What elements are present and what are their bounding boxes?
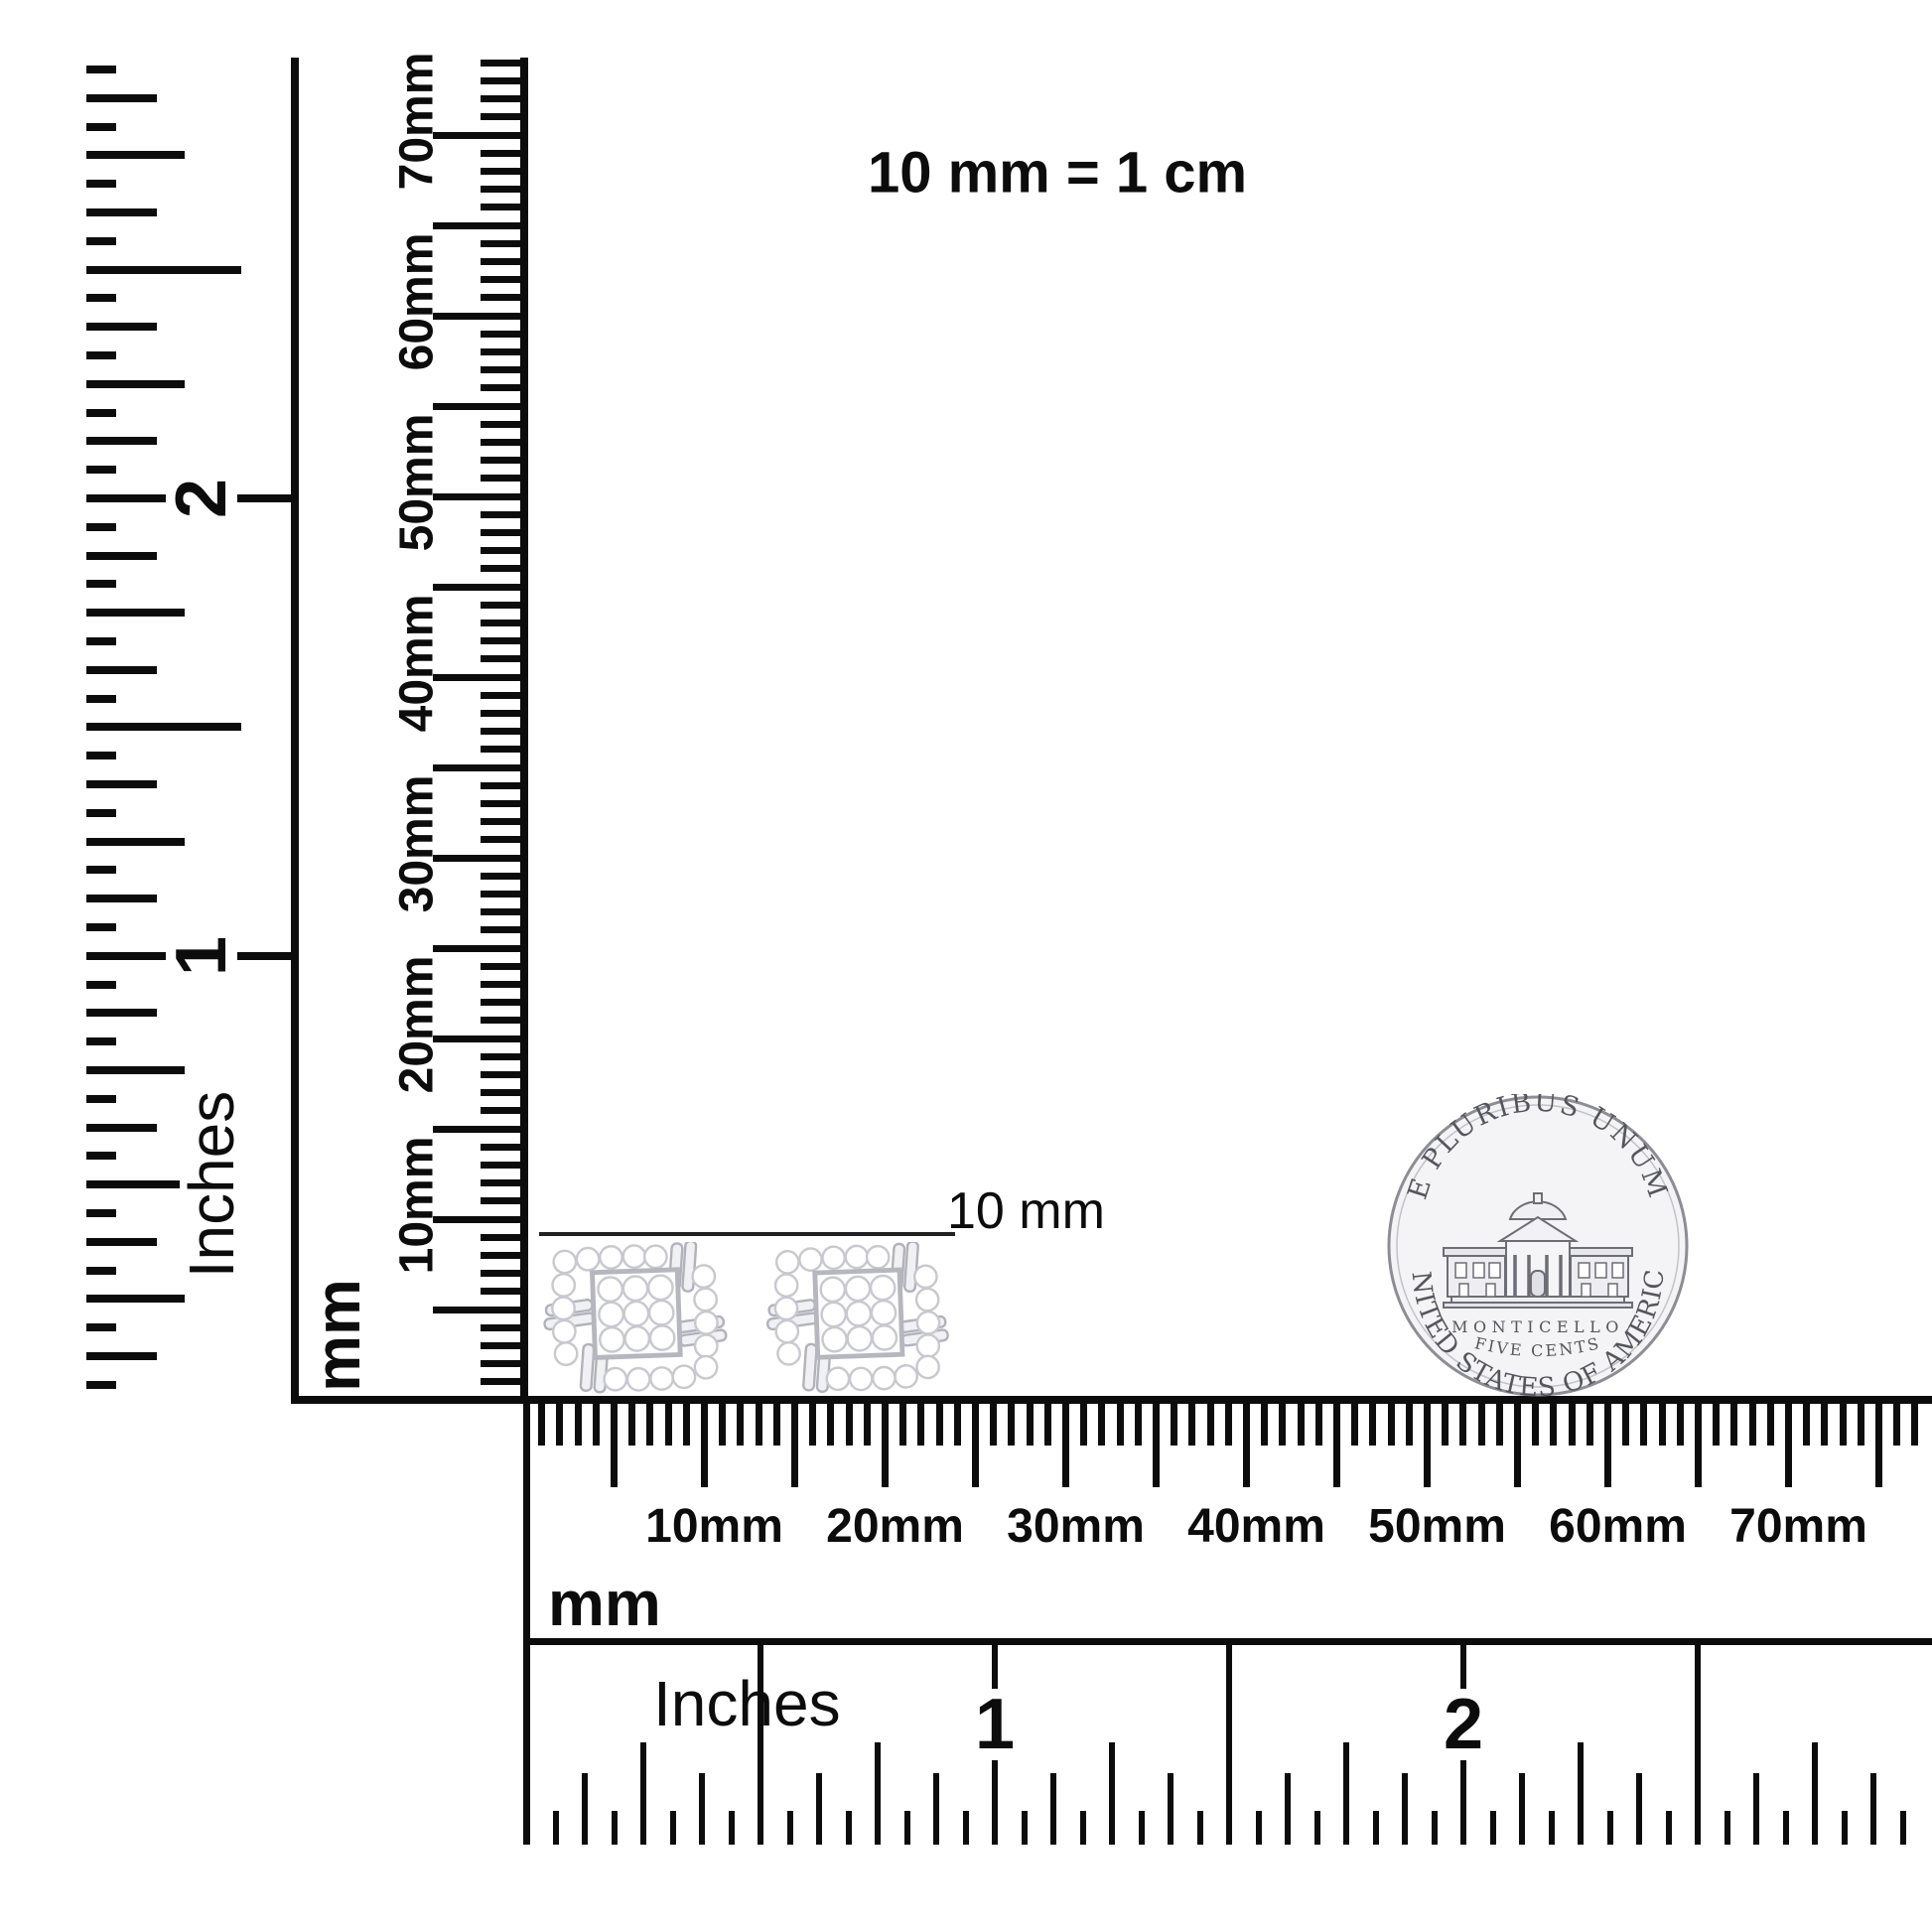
ruler-tick [481, 77, 520, 84]
ruler-tick [1870, 1773, 1876, 1845]
ruler-tick [86, 1323, 116, 1331]
ruler-tick [699, 1773, 705, 1845]
ruler-tick [86, 723, 241, 731]
bottom-mm-label: 60mm [1549, 1499, 1687, 1554]
ruler-tick [1044, 1404, 1051, 1446]
ruler-tick [86, 637, 116, 645]
ruler-tick [1314, 1811, 1320, 1845]
ruler-tick [1532, 1404, 1539, 1446]
ruler-tick [1911, 1404, 1918, 1446]
ruler-tick [665, 1404, 672, 1446]
ruler-tick [787, 1811, 793, 1845]
ruler-tick [481, 511, 520, 518]
ruler-tick [481, 800, 520, 807]
ruler-tick [582, 1773, 588, 1845]
ruler-tick [1478, 1404, 1485, 1446]
ruler-tick [1225, 1404, 1232, 1446]
ruler-tick [1677, 1404, 1684, 1446]
coin-building-label: MONTICELLO [1451, 1317, 1624, 1336]
ruler-left-edge [523, 1404, 530, 1845]
ruler-tick [1243, 1404, 1250, 1487]
bottom-inch-numeral: 2 [1438, 1689, 1489, 1760]
ruler-tick [481, 1252, 520, 1259]
ruler-tick [670, 1811, 676, 1845]
ruler-tick [640, 1742, 646, 1845]
ruler-tick [481, 891, 520, 897]
ruler-tick [1098, 1404, 1105, 1446]
ruler-tick [86, 94, 157, 102]
ruler-tick [433, 1035, 520, 1042]
bottom-mm-label: 50mm [1368, 1499, 1506, 1554]
ruler-tick [86, 552, 157, 560]
bottom-mm-ruler-unit: mm [548, 1567, 661, 1640]
ruler-tick [481, 908, 520, 915]
ruler-tick [433, 674, 520, 681]
ruler-tick [481, 818, 520, 825]
bottom-mm-label: 30mm [1007, 1499, 1145, 1554]
ruler-tick [990, 1404, 997, 1446]
ruler-tick [481, 926, 520, 933]
left-inch-numeral: 1 [166, 930, 237, 982]
ruler-tick [1406, 1404, 1413, 1446]
ruler-tick [917, 1404, 924, 1446]
earring-right [766, 1242, 949, 1395]
ruler-tick [481, 331, 520, 338]
ruler-tick [86, 1095, 116, 1103]
ruler-tick [611, 1404, 618, 1487]
ruler-tick [972, 1404, 979, 1487]
ruler-tick [86, 1381, 116, 1389]
ruler-tick [433, 855, 520, 862]
ruler-tick [86, 66, 116, 73]
ruler-tick [481, 1378, 520, 1385]
ruler-tick [1432, 1811, 1438, 1845]
ruler-tick [875, 1742, 881, 1845]
ruler-tick [1442, 1404, 1449, 1446]
ruler-tick [1109, 1742, 1115, 1845]
left-mm-ruler-unit: mm [301, 1279, 374, 1392]
left-mm-label: 60mm [390, 233, 445, 371]
ruler-tick [433, 132, 520, 139]
ruler-tick [1622, 1404, 1629, 1446]
ruler-tick [1402, 1773, 1408, 1845]
ruler-tick [433, 1126, 520, 1133]
ruler-tick [612, 1811, 618, 1845]
ruler-tick [593, 1404, 600, 1446]
ruler-tick [481, 150, 520, 157]
ruler-tick [1388, 1404, 1395, 1446]
ruler-tick [1695, 1645, 1701, 1845]
ruler-tick [1050, 1773, 1056, 1845]
ruler-tick [481, 168, 520, 175]
ruler-tick [481, 276, 520, 283]
ruler-tick [1008, 1404, 1015, 1446]
ruler-tick [86, 323, 157, 331]
ruler-tick [1785, 1404, 1792, 1487]
ruler-tick [481, 475, 520, 482]
ruler-tick [1496, 1404, 1503, 1446]
ruler-tick [86, 923, 116, 931]
ruler-tick [882, 1404, 889, 1487]
ruler-tick [1842, 1811, 1848, 1845]
ruler-tick [827, 1404, 834, 1446]
ruler-tick [86, 294, 116, 302]
ruler-tick [481, 1360, 520, 1367]
ruler-tick [1587, 1404, 1593, 1446]
ruler-tick [481, 1179, 520, 1186]
ruler-tick [481, 782, 520, 789]
ruler-tick [481, 1053, 520, 1060]
ruler-tick [1424, 1404, 1431, 1487]
ruler-tick [86, 237, 116, 245]
ruler-tick [86, 409, 116, 417]
ruler-tick [1730, 1404, 1737, 1446]
ruler-tick [481, 1197, 520, 1204]
ruler-tick [1062, 1404, 1069, 1487]
ruler-tick [1188, 1404, 1195, 1446]
ruler-tick [1022, 1811, 1028, 1845]
ruler-tick [481, 836, 520, 843]
ruler-tick [1373, 1811, 1379, 1845]
ruler-tick [1315, 1404, 1322, 1446]
ruler-tick [86, 895, 157, 902]
ruler-tick [1514, 1404, 1521, 1487]
measure-line [539, 1232, 955, 1236]
ruler-tick [809, 1404, 816, 1446]
ruler-tick [481, 1144, 520, 1151]
bottom-inch-ruler-unit: Inches [645, 1672, 849, 1735]
ruler-tick [1153, 1404, 1160, 1487]
ruler-tick [481, 1017, 520, 1024]
ruler-tick [1550, 1404, 1557, 1446]
ruler-tick [86, 695, 116, 703]
left-mm-label: 50mm [390, 414, 445, 552]
ruler-tick [86, 866, 116, 874]
ruler-tick [433, 403, 520, 410]
ruler-tick [773, 1404, 780, 1446]
ruler-tick [481, 728, 520, 735]
ruler-tick [1226, 1645, 1232, 1845]
ruler-tick [86, 180, 116, 188]
ruler-tick [936, 1404, 943, 1446]
ruler-tick [1604, 1404, 1611, 1487]
ruler-tick [1343, 1742, 1349, 1845]
ruler-tick [86, 351, 116, 359]
ruler-tick [933, 1773, 939, 1845]
ruler-tick [1549, 1811, 1555, 1845]
ruler-tick [1578, 1742, 1584, 1845]
ruler-tick [816, 1773, 822, 1845]
ruler-tick [433, 313, 520, 320]
ruler-tick [1875, 1404, 1882, 1487]
ruler-tick [86, 752, 116, 759]
ruler-tick [86, 123, 116, 131]
ruler-tick [481, 1234, 520, 1241]
ruler-tick [433, 222, 520, 229]
left-mm-label: 40mm [390, 595, 445, 733]
ruler-tick [1369, 1404, 1376, 1446]
ruler-tick [1753, 1773, 1759, 1845]
ruler-tick [481, 1089, 520, 1096]
ruler-tick [1207, 1404, 1214, 1446]
ruler-tick [86, 1152, 116, 1160]
ruler-tick [481, 95, 520, 102]
ruler-tick [1168, 1773, 1173, 1845]
ruler-tick [1858, 1404, 1864, 1446]
ruler-tick [846, 1404, 853, 1446]
ruler-tick [481, 421, 520, 428]
ruler-tick [1171, 1404, 1177, 1446]
ruler-tick [556, 1404, 563, 1446]
ruler-tick [1659, 1404, 1666, 1446]
left-mm-label: 10mm [390, 1137, 445, 1275]
left-mm-ruler-spine [520, 58, 528, 1400]
ruler-tick [1027, 1404, 1034, 1446]
ruler-tick [701, 1404, 708, 1487]
ruler-tick [1783, 1811, 1789, 1845]
ruler-tick [737, 1404, 744, 1446]
ruler-tick [481, 439, 520, 446]
ruler-tick [481, 1288, 520, 1295]
ruler-tick [86, 1267, 116, 1275]
ruler-tick [481, 1270, 520, 1277]
ruler-tick [481, 999, 520, 1006]
ruler-tick [86, 780, 157, 788]
ruler-tick [481, 1324, 520, 1331]
bottom-inch-ruler-spine [523, 1638, 1932, 1645]
ruler-tick [481, 384, 520, 391]
ruler-tick [481, 746, 520, 753]
bottom-mm-label: 20mm [826, 1499, 964, 1554]
ruler-tick [1900, 1811, 1906, 1845]
ruler-tick [481, 565, 520, 572]
ruler-tick [481, 873, 520, 880]
ruler-tick [481, 1162, 520, 1169]
ruler-tick [86, 838, 185, 846]
ruler-tick [1080, 1404, 1087, 1446]
ruler-tick [899, 1404, 906, 1446]
ruler-tick [1666, 1811, 1672, 1845]
ruler-tick [433, 1307, 520, 1313]
ruler-tick [481, 204, 520, 210]
ruler-tick [1607, 1811, 1613, 1845]
ruler-tick [481, 981, 520, 988]
ruler-tick [86, 266, 241, 274]
ruler-tick [1080, 1811, 1086, 1845]
ruler-tick [86, 981, 116, 989]
ruler-tick [481, 637, 520, 644]
ruler-tick [433, 584, 520, 591]
left-mm-label: 20mm [390, 956, 445, 1094]
ruler-tick [481, 1071, 520, 1078]
ruler-tick [538, 1404, 545, 1446]
ruler-tick [86, 580, 116, 588]
ruler-tick [1713, 1404, 1720, 1446]
ruler-tick [481, 457, 520, 464]
bottom-mm-label: 70mm [1729, 1499, 1867, 1554]
ruler-tick [481, 655, 520, 662]
ruler-tick [575, 1404, 582, 1446]
bottom-mm-label: 40mm [1187, 1499, 1325, 1554]
ruler-tick [481, 258, 520, 265]
left-mm-label: 70mm [390, 53, 445, 191]
ruler-tick [1640, 1404, 1647, 1446]
ruler-tick [433, 1216, 520, 1223]
bottom-mm-label: 10mm [645, 1499, 783, 1554]
ruler-tick [1351, 1404, 1358, 1446]
ruler-tick [1298, 1404, 1305, 1446]
ruler-tick [86, 380, 185, 388]
ruler-tick [481, 692, 520, 699]
ruler-tick [729, 1811, 735, 1845]
ruler-tick [481, 1342, 520, 1349]
ruler-tick [628, 1404, 635, 1446]
ruler-tick [481, 710, 520, 717]
ruler-tick [553, 1811, 559, 1845]
ruler-tick [1139, 1811, 1145, 1845]
measure-label: 10 mm [947, 1181, 1105, 1241]
ruler-tick [481, 366, 520, 373]
ruler-tick [481, 294, 520, 301]
ruler-tick [954, 1404, 961, 1446]
ruler-tick [904, 1811, 910, 1845]
ruler-tick [791, 1404, 798, 1487]
ruler-tick [1256, 1811, 1262, 1845]
ruler-tick [86, 437, 157, 445]
ruler-tick [1279, 1404, 1286, 1446]
ruler-tick [846, 1811, 852, 1845]
ruler-tick [86, 1352, 157, 1360]
ruler-tick [1803, 1404, 1810, 1446]
ruler-tick [1893, 1404, 1900, 1446]
ruler-tick [86, 466, 116, 474]
ruler-tick [86, 523, 116, 531]
left-inch-ruler-spine [291, 58, 299, 1400]
ruler-tick [481, 113, 520, 120]
ruler-tick [86, 809, 116, 817]
ruler-tick [481, 620, 520, 626]
ruler-tick [86, 151, 185, 159]
ruler-tick [481, 1107, 520, 1114]
ruler-tick [86, 1009, 157, 1017]
ruler-tick [86, 666, 157, 674]
ruler-tick [481, 60, 520, 67]
ruler-tick [481, 240, 520, 247]
left-mm-label: 30mm [390, 775, 445, 913]
ruler-tick [1569, 1404, 1576, 1446]
ruler-tick [86, 208, 157, 216]
ruler-tick [963, 1811, 969, 1845]
bottom-inch-numeral: 1 [969, 1689, 1021, 1760]
ruler-tick [481, 963, 520, 970]
ruler-tick [756, 1404, 762, 1446]
ruler-tick [1519, 1773, 1525, 1845]
ruler-tick [1749, 1404, 1756, 1446]
ruler-tick [481, 348, 520, 355]
ruler-tick [1459, 1404, 1466, 1446]
earring-left [541, 1242, 730, 1395]
ruler-tick [683, 1404, 690, 1446]
ruler-tick [86, 1209, 116, 1217]
left-inch-ruler-unit: Inches [180, 1083, 243, 1287]
ruler-tick [1285, 1773, 1291, 1845]
ruler-tick [1840, 1404, 1847, 1446]
ruler-tick [433, 493, 520, 500]
ruler-tick [1197, 1811, 1203, 1845]
ruler-tick [481, 547, 520, 554]
ruler-tick [719, 1404, 726, 1446]
ruler-tick [86, 1037, 116, 1045]
ruler-tick [646, 1404, 653, 1446]
ruler-tick [864, 1404, 871, 1446]
ruler-tick [1821, 1404, 1828, 1446]
ruler-tick [86, 1124, 157, 1132]
ruler-tick [86, 1066, 185, 1074]
ruler-tick [1725, 1811, 1730, 1845]
ruler-tick [481, 602, 520, 609]
left-inch-numeral: 2 [166, 473, 237, 524]
ruler-tick [1117, 1404, 1124, 1446]
ruler-tick [86, 609, 185, 617]
ruler-tick [481, 186, 520, 193]
conversion-note: 10 mm = 1 cm [868, 140, 1247, 207]
ruler-tick [433, 764, 520, 771]
ruler-tick [86, 1238, 157, 1246]
ruler-tick [1490, 1811, 1496, 1845]
ruler-tick [1695, 1404, 1702, 1487]
ruler-tick [481, 529, 520, 536]
ruler-tick [1333, 1404, 1340, 1487]
ruler-tick [1261, 1404, 1268, 1446]
ruler-tick [433, 945, 520, 952]
nickel-coin: E PLURIBUS UNUM MONTICELLO [1386, 1094, 1690, 1398]
size-chart-image: 10 mm = 1 cm 10 mm Inches mm mm Inches [0, 0, 1932, 1932]
ruler-tick [1767, 1404, 1774, 1446]
ruler-tick [1812, 1742, 1818, 1845]
ruler-tick [1636, 1773, 1642, 1845]
ruler-tick [1135, 1404, 1142, 1446]
ruler-tick [86, 1295, 185, 1303]
